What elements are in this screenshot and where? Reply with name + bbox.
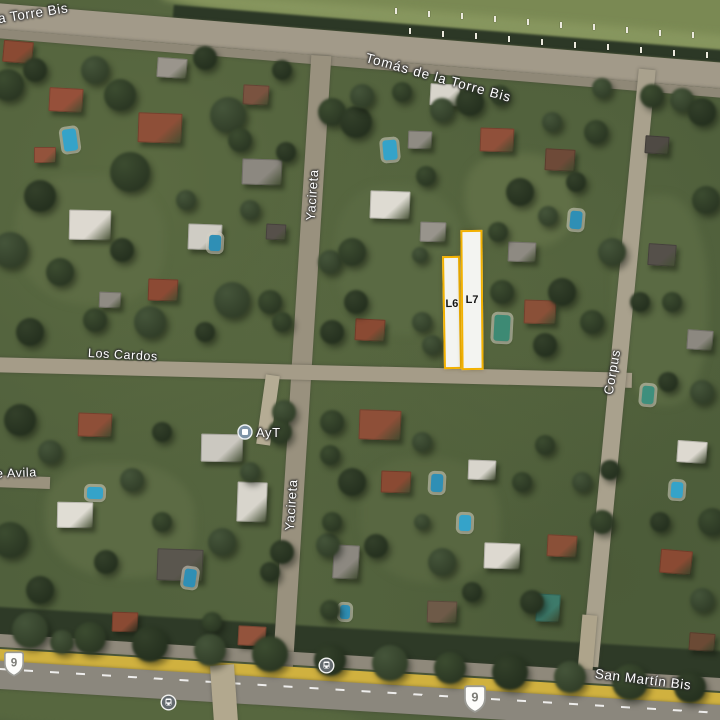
tree-canopy: [538, 206, 558, 226]
tree-canopy: [533, 333, 557, 357]
tree-canopy: [0, 522, 28, 558]
tree-canopy: [228, 128, 252, 152]
tree-canopy: [16, 318, 44, 346]
house-roof: [408, 131, 433, 150]
tree-canopy: [152, 422, 172, 442]
tree-canopy: [590, 510, 614, 534]
fence-post: [706, 52, 708, 58]
house-roof: [156, 548, 203, 582]
satellite-map[interactable]: la Torre Bis Tomás de la Torre Bis Yacir…: [0, 0, 720, 720]
tree-canopy: [320, 600, 340, 620]
route-9-shield-west: 9: [4, 650, 24, 678]
tree-canopy: [688, 98, 716, 126]
tree-canopy: [320, 410, 344, 434]
los-cardos-road: [0, 357, 632, 388]
bus-stop-icon-west[interactable]: [160, 694, 177, 711]
tree-canopy: [584, 120, 608, 144]
tree-canopy: [412, 312, 432, 332]
fence-post: [475, 33, 477, 39]
tree-canopy: [698, 508, 720, 536]
house-roof: [358, 409, 401, 440]
tree-canopy: [416, 166, 436, 186]
tree-canopy: [490, 280, 514, 304]
tree-canopy: [542, 112, 562, 132]
tree-canopy: [320, 320, 344, 344]
fence-post: [541, 39, 543, 45]
tree-canopy: [650, 512, 670, 532]
tree-canopy: [630, 292, 650, 312]
house-roof: [508, 242, 537, 263]
house-roof: [354, 318, 385, 342]
fence-post: [494, 16, 496, 22]
lot-l7-label: L7: [466, 294, 479, 306]
tree-canopy: [104, 79, 136, 111]
tree-canopy: [535, 435, 555, 455]
tree-canopy: [176, 190, 196, 210]
house-roof: [242, 158, 283, 185]
tree-canopy: [512, 472, 532, 492]
house-roof: [686, 329, 713, 351]
tree-canopy: [492, 654, 528, 690]
house-roof: [647, 243, 676, 267]
swimming-pool: [209, 235, 222, 252]
tree-canopy: [193, 46, 217, 70]
tree-canopy: [554, 661, 586, 693]
tree-canopy: [364, 534, 388, 558]
swimming-pool: [493, 315, 510, 342]
tree-canopy: [320, 445, 340, 465]
tree-canopy: [640, 84, 664, 108]
house-roof: [148, 278, 179, 301]
swimming-pool: [459, 515, 472, 531]
tree-canopy: [580, 310, 604, 334]
bus-stop-icon-east[interactable]: [318, 657, 335, 674]
swimming-pool: [62, 128, 79, 152]
tree-canopy: [252, 636, 288, 672]
house-roof: [78, 412, 113, 437]
tree-canopy: [272, 60, 292, 80]
tree-canopy: [46, 258, 74, 286]
tree-canopy: [134, 306, 166, 338]
tree-canopy: [12, 612, 48, 648]
tree-canopy: [392, 82, 412, 102]
tree-canopy: [662, 292, 682, 312]
tree-canopy: [414, 514, 430, 530]
house-roof: [659, 549, 693, 576]
tree-canopy: [566, 172, 586, 192]
tree-canopy: [592, 78, 612, 98]
tree-canopy: [214, 282, 250, 318]
tree-canopy: [600, 460, 620, 480]
house-roof: [420, 222, 447, 243]
tree-canopy: [434, 652, 466, 684]
tree-canopy: [240, 462, 260, 482]
house-roof: [427, 600, 458, 623]
ayt-poi-label[interactable]: AyT: [256, 425, 281, 440]
house-roof: [69, 210, 112, 241]
house-roof: [644, 135, 669, 155]
tree-canopy: [94, 550, 118, 574]
tree-canopy: [658, 372, 678, 392]
tree-canopy: [110, 238, 134, 262]
swimming-pool: [641, 386, 655, 405]
tree-canopy: [462, 582, 482, 602]
tree-canopy: [520, 590, 544, 614]
fence-post: [527, 19, 529, 25]
fence-post: [560, 22, 562, 28]
swimming-pool: [569, 211, 583, 230]
tree-canopy: [422, 335, 442, 355]
fence-post: [409, 28, 411, 34]
tree-canopy: [692, 186, 720, 214]
fence-post: [692, 32, 694, 38]
fence-post: [395, 8, 397, 14]
tree-canopy: [322, 512, 342, 532]
tree-canopy: [350, 84, 374, 108]
fence-post: [442, 31, 444, 37]
fence-post: [593, 24, 595, 30]
fence-post: [626, 27, 628, 33]
tree-canopy: [0, 69, 24, 101]
tree-canopy: [81, 56, 109, 84]
street-label-e-avila: e Avila: [0, 465, 37, 480]
house-roof: [688, 632, 715, 652]
fence-post: [428, 11, 430, 17]
swimming-pool: [382, 139, 398, 160]
house-roof: [57, 502, 93, 529]
tree-canopy: [110, 152, 150, 192]
fence-post: [640, 47, 642, 53]
svg-text:9: 9: [471, 690, 478, 705]
tree-canopy: [690, 380, 714, 404]
swimming-pool: [183, 568, 197, 587]
tree-canopy: [690, 588, 714, 612]
tree-canopy: [430, 98, 454, 122]
ayt-poi-icon[interactable]: [237, 424, 253, 440]
tree-canopy: [572, 472, 592, 492]
tree-canopy: [506, 178, 534, 206]
tree-canopy: [276, 142, 296, 162]
tree-canopy: [194, 634, 226, 666]
tree-canopy: [338, 238, 366, 266]
lot-l6[interactable]: L6: [442, 256, 462, 369]
lot-l7[interactable]: L7: [460, 230, 483, 370]
house-roof: [468, 460, 497, 481]
tree-canopy: [26, 576, 54, 604]
swimming-pool: [87, 487, 103, 500]
house-roof: [99, 292, 122, 309]
lot-l6-label: L6: [445, 298, 458, 310]
fence-post: [574, 42, 576, 48]
swimming-pool: [670, 482, 683, 499]
svg-text:9: 9: [11, 657, 18, 670]
tree-canopy: [23, 58, 47, 82]
tree-canopy: [344, 290, 368, 314]
house-roof: [242, 84, 269, 105]
house-roof: [156, 57, 187, 79]
house-roof: [381, 470, 412, 493]
house-roof: [48, 87, 83, 113]
tree-canopy: [260, 562, 280, 582]
house-roof: [546, 534, 577, 558]
house-roof: [137, 112, 182, 144]
tree-canopy: [412, 432, 432, 452]
tree-canopy: [120, 468, 144, 492]
house-roof: [676, 440, 707, 464]
house-roof: [484, 542, 521, 569]
fence-post: [673, 50, 675, 56]
fence-post: [659, 30, 661, 36]
swimming-pool: [431, 474, 444, 493]
house-roof: [112, 612, 139, 633]
tree-canopy: [548, 278, 576, 306]
tree-canopy: [488, 222, 508, 242]
dirt-crossing: [210, 664, 238, 720]
tree-canopy: [195, 322, 215, 342]
fence-post: [461, 13, 463, 19]
house-roof: [524, 299, 557, 324]
tree-canopy: [208, 528, 236, 556]
tree-canopy: [74, 622, 106, 654]
tree-canopy: [412, 247, 428, 263]
fence-post: [607, 44, 609, 50]
house-roof: [370, 190, 411, 219]
swimming-pool: [340, 605, 350, 619]
tree-canopy: [272, 312, 292, 332]
house-roof: [266, 223, 287, 240]
tree-canopy: [428, 548, 456, 576]
tree-canopy: [83, 308, 107, 332]
tree-canopy: [132, 626, 168, 662]
tree-canopy: [4, 404, 36, 436]
tree-canopy: [24, 180, 56, 212]
house-roof: [236, 481, 267, 522]
tree-canopy: [340, 106, 372, 138]
tree-canopy: [50, 630, 74, 654]
tree-canopy: [240, 200, 260, 220]
tree-canopy: [202, 612, 222, 632]
tree-canopy: [338, 468, 366, 496]
tree-canopy: [38, 440, 62, 464]
house-roof: [544, 148, 575, 172]
tree-canopy: [270, 540, 294, 564]
house-roof: [34, 147, 56, 163]
tree-canopy: [258, 290, 282, 314]
house-roof: [480, 127, 515, 152]
fence-post: [508, 36, 510, 42]
tree-canopy: [316, 533, 340, 557]
tree-canopy: [372, 645, 408, 681]
tree-canopy: [152, 512, 172, 532]
route-9-shield-east: 9: [464, 684, 486, 714]
tree-canopy: [598, 238, 626, 266]
